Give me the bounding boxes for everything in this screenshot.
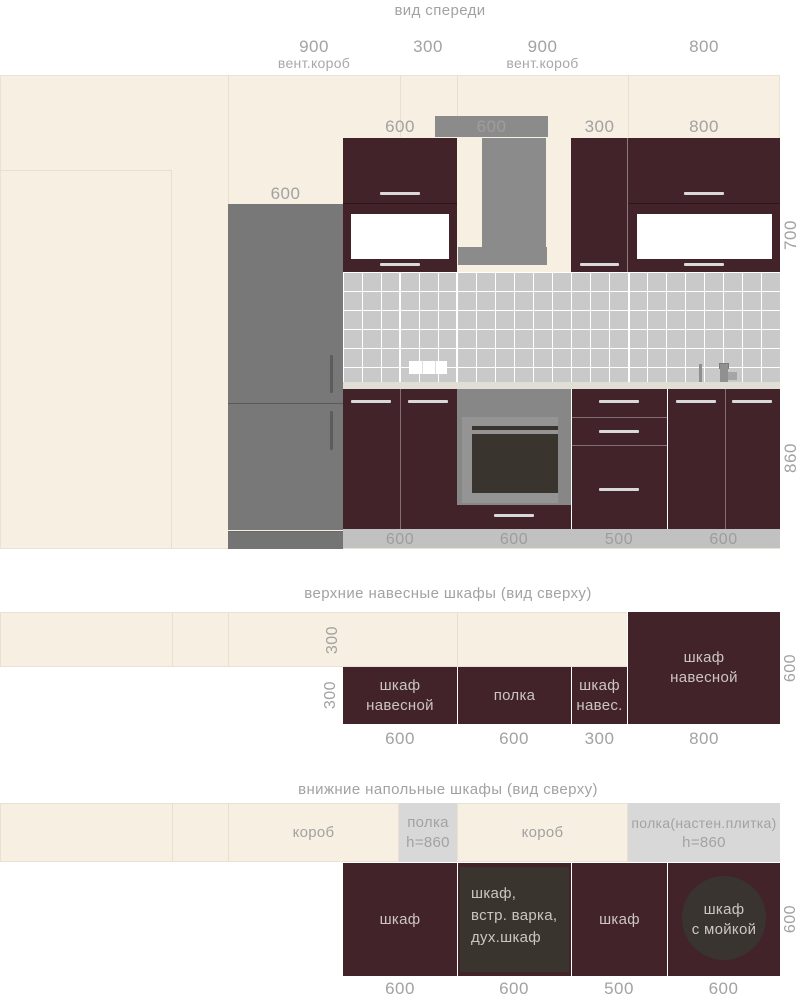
lower-cab-4-label: шкаф с мойкой [668, 863, 780, 976]
dim-900-left: 900 [228, 37, 400, 57]
dim-900-right: 900 [457, 37, 628, 57]
height-860-label: 860 [781, 438, 800, 478]
lower-cab-2-label: шкаф, встр. варка, дух.шкаф [471, 883, 571, 949]
tile-separator-3 [628, 272, 630, 382]
upper-right-depth-600: 600 [782, 648, 800, 688]
countertop [343, 382, 780, 389]
lower-cab-1-label: шкаф [380, 910, 421, 930]
base-600-left-handle-2 [408, 400, 448, 403]
lower-cab-1-top: шкаф [343, 863, 457, 976]
lower-cab-4-label-line2: с мойкой [692, 920, 757, 940]
upper-cab-3-top: шкаф навес. [572, 667, 627, 724]
upper-cabinet-600-handle-top [380, 192, 420, 195]
lower-dim-2: 600 [457, 979, 571, 996]
upper-dim-2: 600 [457, 729, 571, 749]
upper-strip-line-3 [457, 612, 458, 667]
kitchen-drawing: вид спереди 900 вент.короб 300 900 вент.… [0, 0, 800, 996]
lower-cab-4-top: шкаф с мойкой [668, 863, 780, 976]
lower-cab-2-label-line3: дух.шкаф [471, 927, 571, 949]
base-cabinet-600-right [668, 389, 780, 529]
upper-cab-4-top: шкаф навесной [628, 612, 780, 724]
plinth-dim-1: 600 [343, 531, 457, 549]
upper-cabinet-800-divider [628, 203, 780, 204]
lower-view-title: внижние напольные шкафы (вид сверху) [148, 781, 748, 798]
wall-corner-line-horizontal [0, 170, 171, 171]
upper-cab-1-label-line2: навесной [366, 696, 434, 716]
upper-strip-line-1 [172, 612, 173, 667]
shelf-860-large-line1: полка(настен.плитка) [631, 813, 776, 833]
base-cabinet-600-right-divider [725, 389, 726, 529]
vent-duct-box: 600 [435, 116, 548, 137]
upper-cabinet-600-divider [343, 203, 457, 204]
lower-cab-2-label-line1: шкаф, [471, 883, 571, 905]
oven-drawer-handle [494, 514, 534, 517]
upper-cab-2-top: полка [458, 667, 571, 724]
shelf-860-large-line2: h=860 [682, 833, 726, 853]
hood-chimney [482, 138, 546, 247]
upper-cab-3-label-line1: шкаф [579, 676, 620, 696]
upper-cab-1-top: шкаф навесной [343, 667, 457, 724]
faucet-spout [728, 372, 737, 380]
upper-row-depth-300: 300 [322, 675, 340, 715]
upper-cabinet-600-handle-bottom [380, 263, 420, 266]
lower-korob-1: короб [228, 823, 399, 843]
upper-dim-3: 300 [571, 729, 628, 749]
upper-cab-2-label: полка [494, 686, 536, 706]
plinth-dim-2: 600 [457, 531, 571, 549]
dim-upper-cab-800: 800 [628, 117, 780, 137]
upper-cabinet-800-glass [637, 214, 772, 259]
shelf-860-large: полка(настен.плитка) h=860 [628, 803, 780, 862]
lower-cab-4-label-line1: шкаф [704, 900, 745, 920]
drawer-unit-500 [572, 389, 667, 529]
upper-cabinet-800-handle-bottom [684, 263, 724, 266]
upper-wall-strip [0, 612, 628, 667]
lower-dim-1: 600 [343, 979, 457, 996]
lower-korob-2: короб [457, 823, 628, 843]
shelf-860-small-line1: полка [407, 813, 449, 833]
lower-dim-3: 500 [571, 979, 667, 996]
dim-upper-cab-300: 300 [571, 117, 628, 137]
drawer-divider-1 [572, 417, 667, 418]
upper-cab-4-label-line1: шкаф [684, 648, 725, 668]
lower-cab-2-label-line2: встр. варка, [471, 905, 571, 927]
base-cabinet-600-left-divider [400, 389, 401, 529]
oven-door [472, 434, 558, 493]
dim-300-top: 300 [399, 37, 457, 57]
drawer-divider-2 [572, 445, 667, 446]
upper-cabinet-600-glass [351, 214, 449, 259]
plinth-dim-4: 600 [667, 531, 780, 549]
fridge-handle-upper [330, 355, 333, 393]
drawer-handle-3 [599, 488, 639, 491]
lower-cab-3-top: шкаф [572, 863, 667, 976]
vent-duct-box-dim: 600 [435, 116, 548, 137]
lower-strip-line-1 [172, 803, 173, 862]
upper-dim-1: 600 [343, 729, 457, 749]
base-600-right-handle-2 [732, 400, 772, 403]
drawer-handle-1 [599, 400, 639, 403]
upper-wall-depth-300: 300 [324, 620, 342, 660]
fridge-handle-lower [330, 411, 333, 450]
wall-corner-line-vertical [171, 170, 172, 548]
power-socket [409, 361, 447, 374]
dim-800-top: 800 [628, 37, 780, 57]
upper-cabinet-300 [571, 138, 628, 272]
upper-cab-4-label-line2: навесной [670, 668, 738, 688]
dim-fridge-600: 600 [228, 184, 343, 204]
hood-body [458, 247, 547, 265]
upper-cabinet-300-handle [580, 263, 619, 266]
vent-duct-note-left: вент.короб [228, 55, 400, 71]
fridge [228, 204, 343, 530]
vent-duct-note-right: вент.короб [457, 55, 628, 71]
height-700-label: 700 [781, 215, 800, 255]
upper-cabinet-800-handle-top [684, 192, 724, 195]
shelf-860-small-line2: h=860 [406, 833, 450, 853]
upper-cab-1-label-line1: шкаф [380, 676, 421, 696]
upper-view-title: верхние навесные шкафы (вид сверху) [148, 585, 748, 602]
tile-separator-1 [399, 272, 401, 382]
upper-dim-4: 800 [628, 729, 780, 749]
upper-strip-line-2 [228, 612, 229, 667]
shelf-860-small: полка h=860 [399, 803, 457, 862]
fridge-base [228, 531, 343, 549]
lower-cab-2-top: шкаф, встр. варка, дух.шкаф [458, 863, 571, 976]
fridge-door-divider [228, 403, 343, 404]
oven-drawer [457, 505, 571, 529]
lower-dim-4: 600 [667, 979, 780, 996]
base-600-left-handle-1 [351, 400, 391, 403]
drawer-handle-2 [599, 430, 639, 433]
base-600-right-handle-1 [676, 400, 716, 403]
tile-separator-2 [456, 272, 458, 382]
plinth-dim-3: 500 [571, 531, 667, 549]
oven-vent-line [472, 426, 558, 430]
front-view-title: вид спереди [140, 2, 740, 19]
lower-cab-3-label: шкаф [599, 910, 640, 930]
upper-cab-3-label-line2: навес. [576, 696, 622, 716]
lower-right-depth-600: 600 [782, 899, 800, 939]
